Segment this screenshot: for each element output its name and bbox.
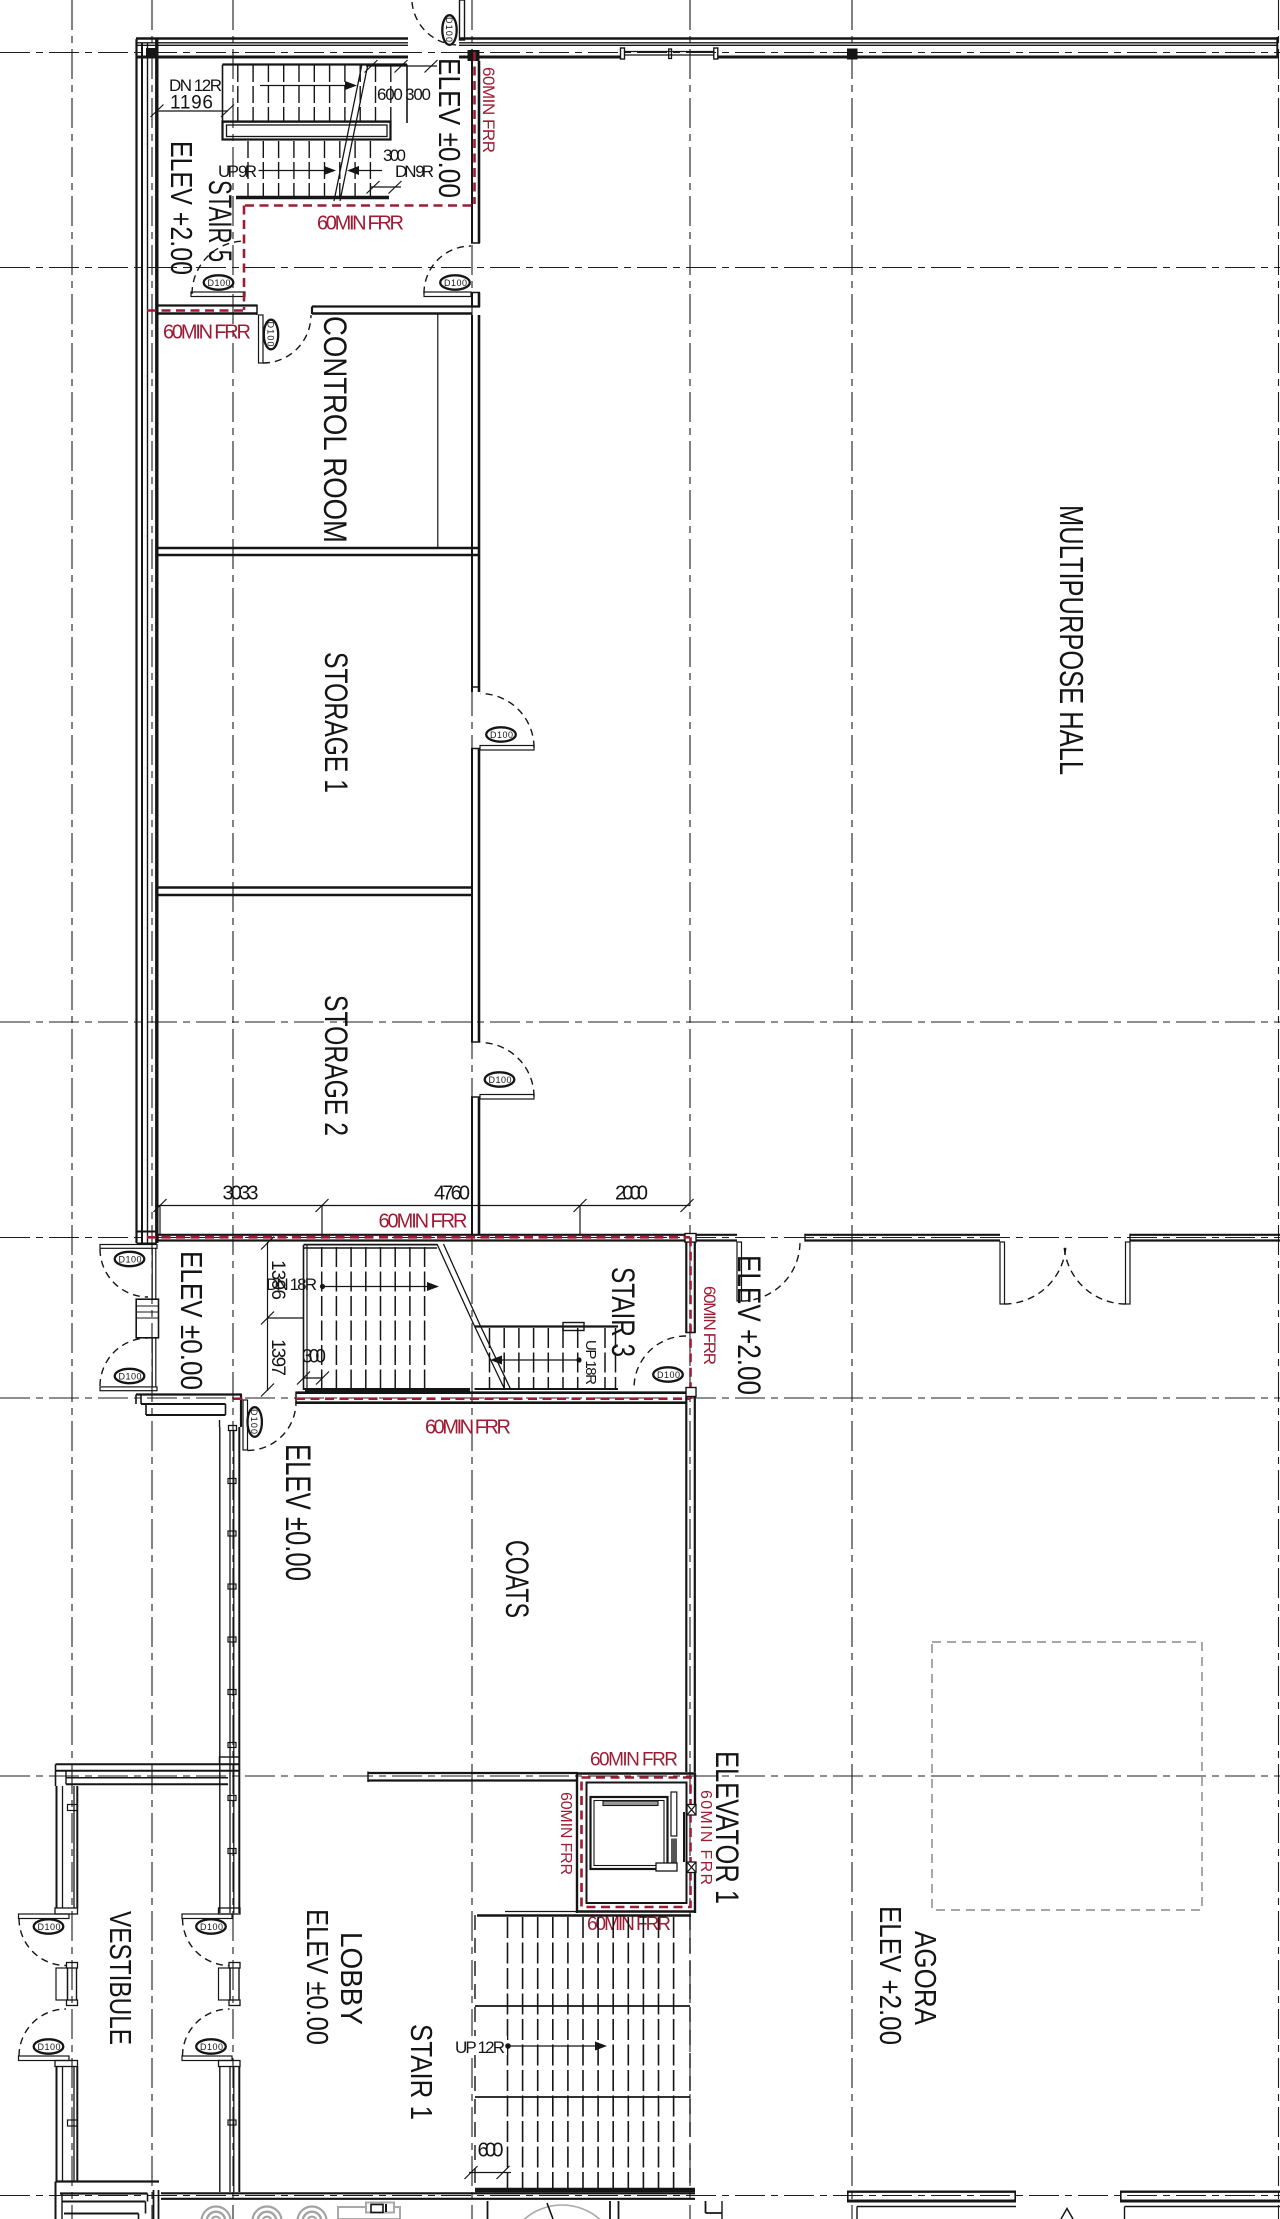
svg-text:ELEV +2.00: ELEV +2.00 [873, 1906, 908, 2045]
svg-text:4760: 4760 [434, 1183, 470, 1205]
svg-text:LOBBY: LOBBY [334, 1932, 369, 2025]
svg-text:600 300: 600 300 [377, 85, 431, 104]
svg-text:ELEVATOR 1: ELEVATOR 1 [709, 1751, 745, 1904]
svg-text:60MIN FRR: 60MIN FRR [479, 67, 498, 153]
svg-text:D100: D100 [38, 2042, 61, 2052]
svg-text:VESTIBULE: VESTIBULE [103, 1911, 138, 2045]
svg-text:60MIN FRR: 60MIN FRR [317, 213, 404, 235]
svg-text:600: 600 [478, 2140, 504, 2162]
svg-text:DN 18R: DN 18R [266, 1275, 317, 1294]
svg-text:D100: D100 [444, 17, 454, 42]
svg-text:D100: D100 [266, 322, 276, 347]
svg-text:ELEV +2.00: ELEV +2.00 [164, 141, 199, 275]
svg-text:60MIN FRR: 60MIN FRR [425, 1417, 511, 1439]
svg-text:D100: D100 [490, 730, 513, 740]
svg-text:D100: D100 [200, 2042, 223, 2052]
svg-text:300: 300 [302, 1347, 326, 1368]
svg-text:D100: D100 [208, 278, 231, 288]
svg-text:DN 9R: DN 9R [395, 162, 434, 181]
svg-text:MULTIPURPOSE HALL: MULTIPURPOSE HALL [1053, 505, 1090, 775]
svg-text:1397: 1397 [267, 1339, 288, 1376]
svg-text:UP 18R: UP 18R [582, 1340, 599, 1385]
svg-text:COATS: COATS [499, 1540, 535, 1618]
svg-text:3033: 3033 [223, 1183, 259, 1205]
svg-text:D100: D100 [200, 1922, 223, 1932]
svg-text:ELEV +2.00: ELEV +2.00 [731, 1255, 767, 1395]
svg-text:D100: D100 [657, 1370, 680, 1380]
svg-text:D100: D100 [249, 1409, 259, 1434]
svg-text:STORAGE 2: STORAGE 2 [318, 995, 354, 1136]
svg-text:D100: D100 [489, 1075, 512, 1085]
svg-text:ELEV ±0.00: ELEV ±0.00 [300, 1909, 335, 2045]
svg-text:STAIR 5: STAIR 5 [202, 180, 238, 262]
svg-text:D100: D100 [38, 1922, 61, 1932]
svg-text:D100: D100 [119, 1372, 142, 1382]
svg-text:STAIR 1: STAIR 1 [404, 2024, 439, 2120]
svg-text:CONTROL ROOM: CONTROL ROOM [317, 316, 353, 543]
svg-text:60MIN FRR: 60MIN FRR [590, 1750, 678, 1771]
svg-text:ELEV ±0.00: ELEV ±0.00 [278, 1444, 317, 1581]
svg-text:UP 12R: UP 12R [455, 2038, 505, 2057]
svg-text:60MIN FRR: 60MIN FRR [557, 1792, 574, 1875]
svg-text:60MIN FRR: 60MIN FRR [379, 1211, 468, 1233]
svg-text:60MIN FRR: 60MIN FRR [700, 1286, 719, 1365]
svg-text:STORAGE 1: STORAGE 1 [318, 652, 354, 793]
svg-text:D100: D100 [444, 278, 467, 288]
svg-text:1196: 1196 [170, 93, 213, 114]
svg-text:AGORA: AGORA [908, 1931, 943, 2025]
svg-text:D100: D100 [119, 1255, 142, 1265]
svg-text:60MIN FRR: 60MIN FRR [163, 322, 251, 344]
svg-text:ELEV ±0.00: ELEV ±0.00 [432, 58, 467, 198]
svg-text:UP 9R: UP 9R [218, 162, 257, 181]
svg-text:STAIR 3: STAIR 3 [605, 1267, 641, 1357]
svg-text:2000: 2000 [615, 1183, 648, 1205]
svg-text:ELEV ±0.00: ELEV ±0.00 [174, 1251, 209, 1390]
